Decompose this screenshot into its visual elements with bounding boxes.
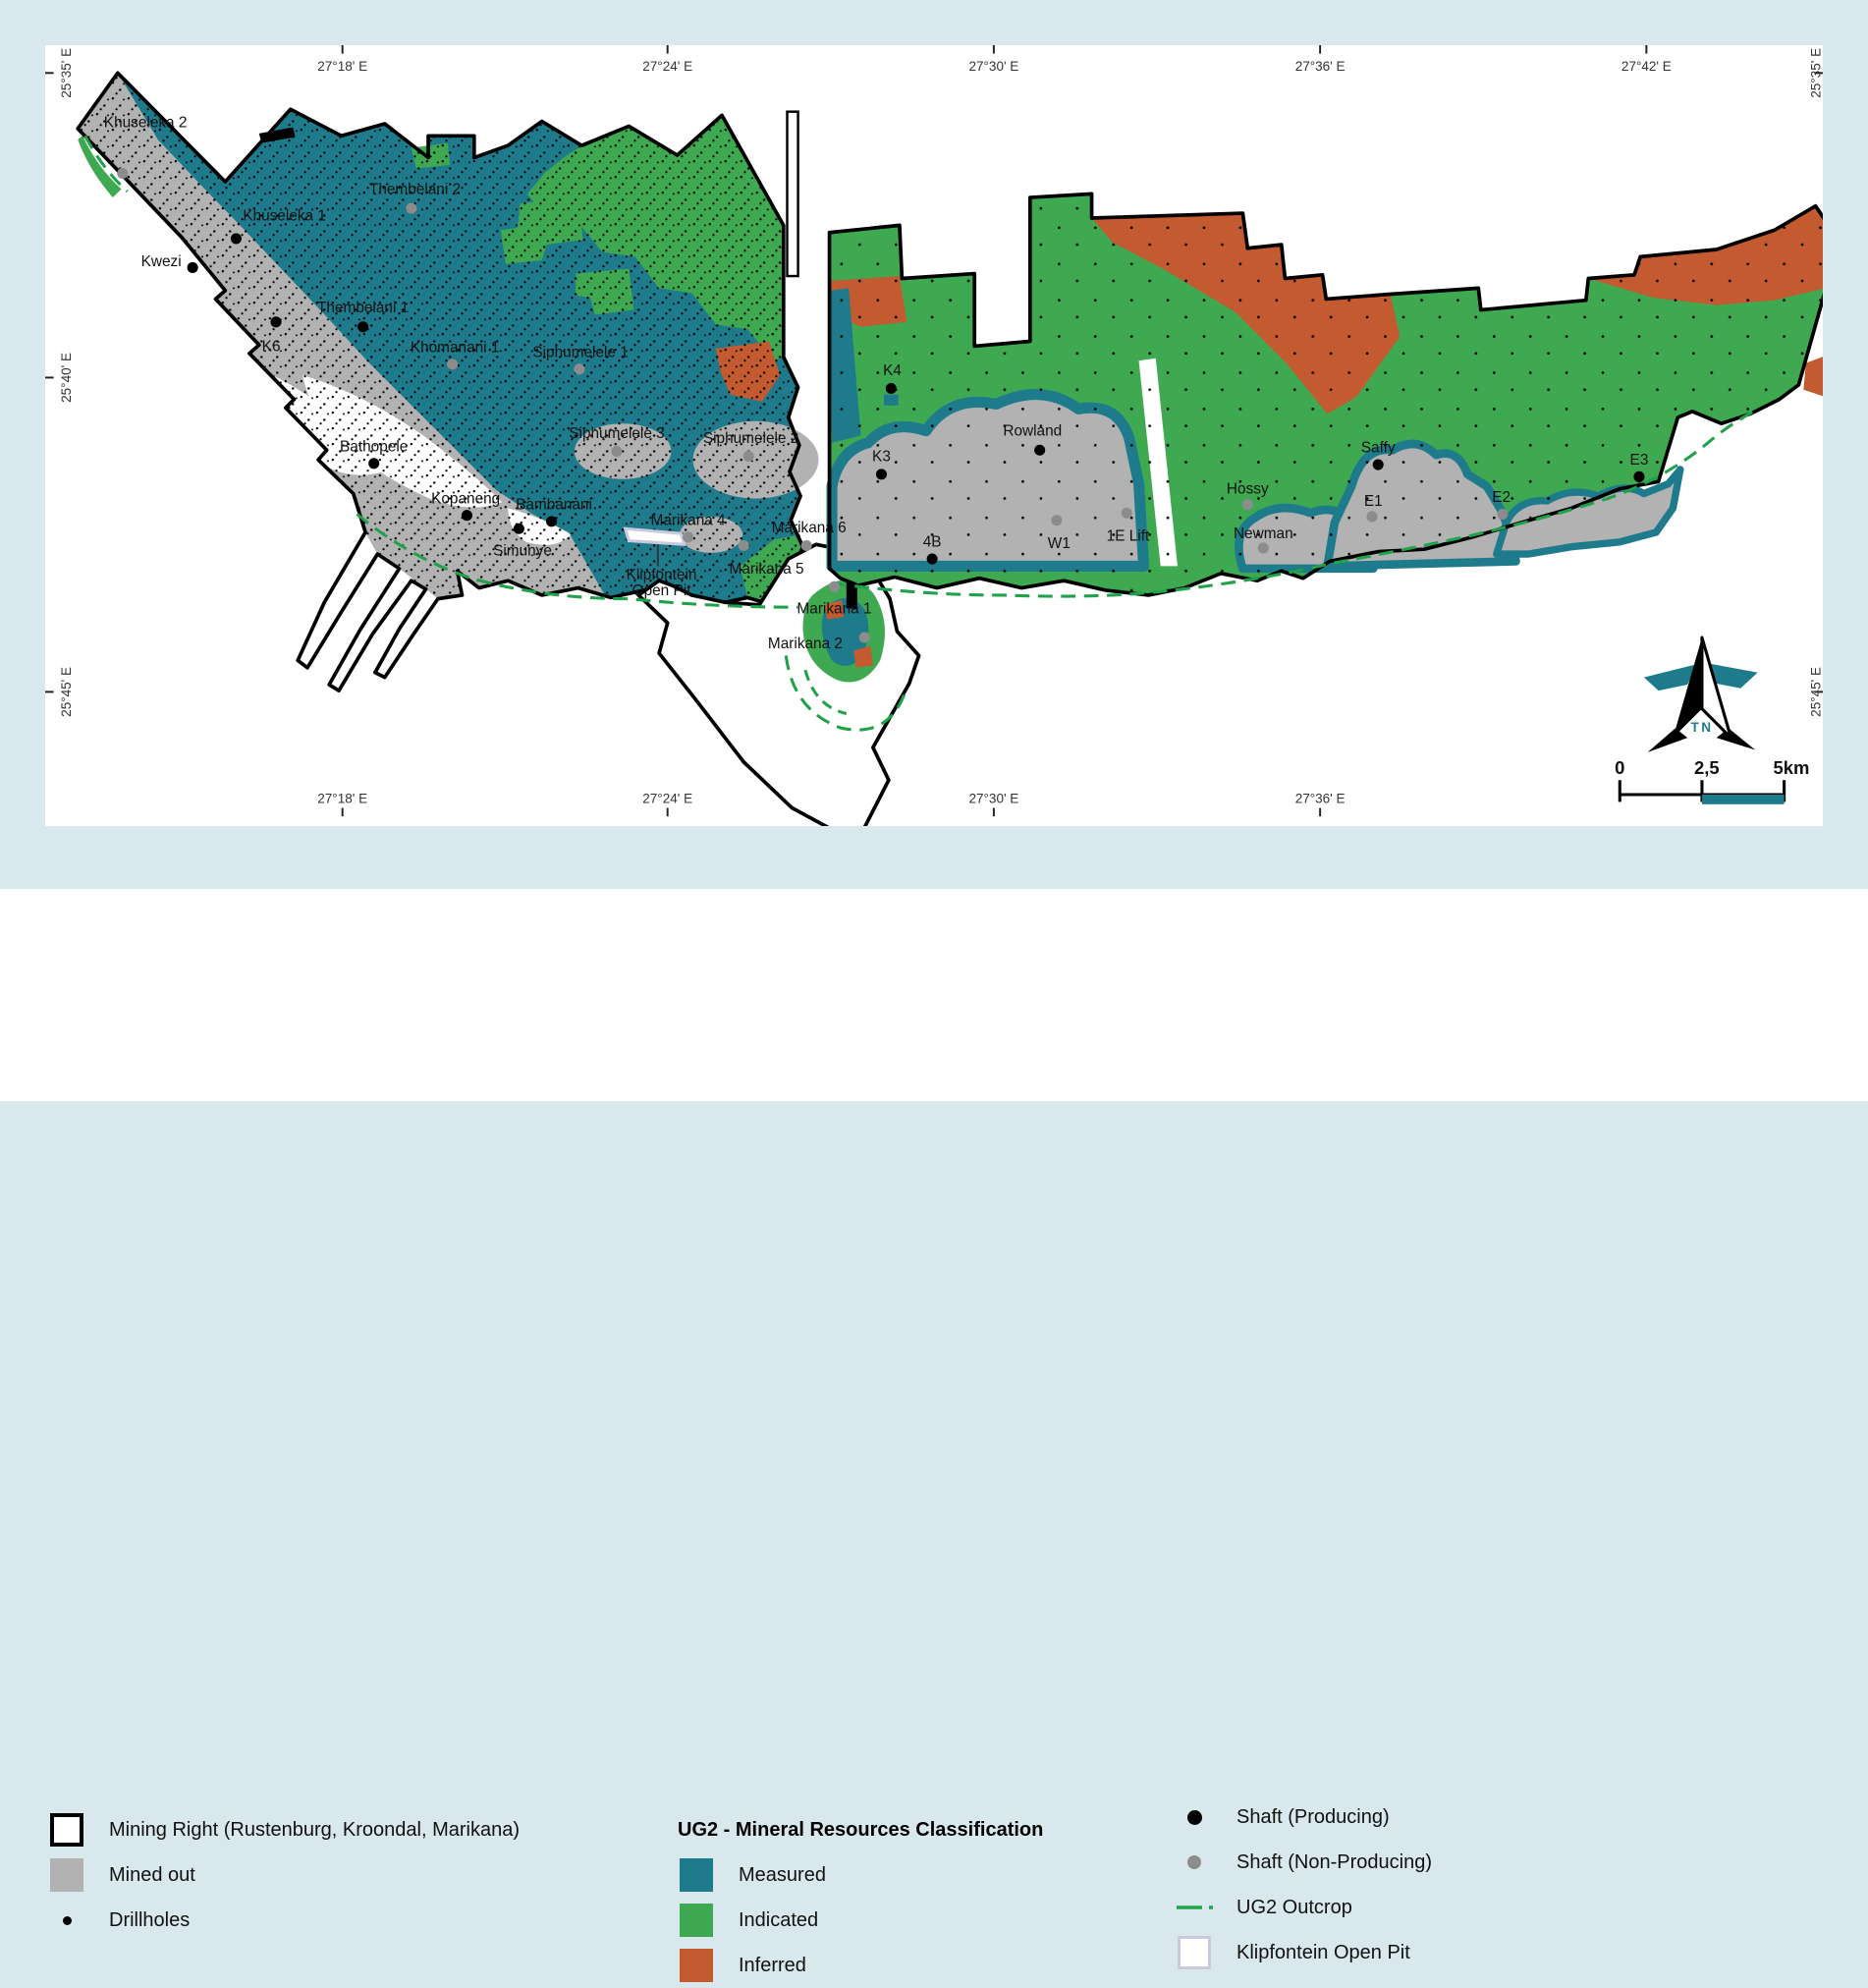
- shaft-dot-thembelani-1: [357, 321, 368, 332]
- shaft-label-bathopele: Bathopele: [340, 438, 408, 455]
- shaft-dot-kopaneng: [462, 510, 472, 521]
- north-arrow: [1644, 637, 1758, 752]
- shaft-dot-hossy: [1242, 499, 1253, 510]
- shaft-dot-siphumelele-1: [574, 363, 584, 374]
- legend-item-shaft-non-producing: Shaft (Non-Producing): [1176, 1840, 1432, 1885]
- coordinate-label: 27°18' E: [317, 792, 367, 806]
- shaft-label-marikana-5: Marikana 5: [730, 561, 804, 578]
- inferred-swatch: [680, 1949, 713, 1982]
- shaft-dot-khomanani-1: [447, 359, 458, 369]
- coordinate-label: 27°36' E: [1295, 59, 1346, 74]
- shaft-dot-1e-lift: [1122, 508, 1132, 519]
- shaft-dot-newman: [1258, 542, 1269, 553]
- shaft-label-saffy: Saffy: [1361, 440, 1396, 457]
- shaft-label-e3: E3: [1630, 452, 1649, 469]
- shaft-dot-khuseleka-1: [231, 233, 242, 244]
- shaft-dot-4b: [927, 553, 938, 564]
- shaft-producing-dot-icon: [1187, 1810, 1202, 1825]
- shaft-label-thembelani-1: Thembelani 1: [317, 300, 409, 316]
- legend-column-1: Mining Right (Rustenburg, Kroondal, Mari…: [48, 1807, 520, 1943]
- shaft-dot-siphumelele-2: [743, 451, 754, 462]
- legend-label: Klipfontein Open Pit: [1236, 1942, 1410, 1964]
- scale-bar: [1620, 780, 1784, 804]
- coordinate-label: 25°45' E: [59, 667, 74, 717]
- shaft-label-bambanani: Bambanani: [516, 497, 592, 514]
- klipfontein-swatch: [1178, 1936, 1211, 1969]
- legend-item-mining-right: Mining Right (Rustenburg, Kroondal, Mari…: [48, 1807, 520, 1852]
- shaft-dot-e3: [1633, 471, 1644, 482]
- shaft-dot-k3: [876, 469, 887, 479]
- shaft-dot-saffy: [1373, 459, 1384, 469]
- shaft-dot-bathopele: [368, 458, 379, 469]
- boundary-notch: [787, 112, 797, 276]
- shaft-label-rowland: Rowland: [1003, 422, 1062, 439]
- page: { "colors": { "background": "#d9e8ec", "…: [0, 0, 1868, 1101]
- legend-label: Shaft (Non-Producing): [1236, 1851, 1432, 1874]
- legend-column-2: UG2 - Mineral Resources Classification M…: [678, 1807, 1043, 1988]
- shaft-label-w1: W1: [1048, 535, 1071, 552]
- legend-label: Shaft (Producing): [1236, 1806, 1390, 1829]
- mine-map: 27°18' E27°24' E27°30' E27°36' E27°42' E…: [45, 45, 1823, 826]
- shaft-dot-thembelani-2: [406, 203, 416, 214]
- shaft-dot-bambanani: [546, 516, 557, 526]
- shaft-label-siphumelele-3: Siphumelele 3: [569, 425, 664, 442]
- shaft-dot-w1: [1051, 515, 1062, 525]
- shaft-dot-e1: [1367, 511, 1378, 522]
- shaft-label-k3: K3: [872, 448, 891, 465]
- area-label: Open Pit: [632, 582, 692, 599]
- scale-bar-label: 5km: [1774, 757, 1810, 778]
- shaft-dot-simunye: [514, 524, 524, 534]
- shaft-label-marikana-2: Marikana 2: [768, 635, 843, 652]
- coordinate-label: 27°30' E: [968, 59, 1018, 74]
- scale-bar-label: 2,5: [1694, 757, 1720, 778]
- legend-label: Drillholes: [109, 1909, 190, 1932]
- shaft-dot-k6: [270, 316, 281, 327]
- legend-label: Mining Right (Rustenburg, Kroondal, Mari…: [109, 1819, 520, 1842]
- shaft-label-thembelani-2: Thembelani 2: [369, 181, 461, 197]
- legend-item-klipfontein: Klipfontein Open Pit: [1176, 1930, 1432, 1975]
- shaft-label-4b: 4B: [923, 534, 942, 551]
- legend-label: Measured: [739, 1864, 826, 1887]
- scale-bar-label: 0: [1615, 757, 1624, 778]
- legend: Mining Right (Rustenburg, Kroondal, Mari…: [0, 889, 1868, 1101]
- shaft-label-khomanani-1: Khomanani 1: [411, 340, 500, 357]
- shaft-label-marikana-6: Marikana 6: [772, 520, 847, 536]
- coordinate-label: 25°40' E: [59, 353, 74, 403]
- legend-item-inferred: Inferred: [678, 1943, 1043, 1988]
- coordinate-label: 25°35' E: [59, 48, 74, 98]
- coordinate-label: 27°42' E: [1621, 59, 1672, 74]
- legend-label: UG2 Outcrop: [1236, 1897, 1352, 1919]
- shaft-dot-marikana-1: [829, 581, 840, 592]
- shaft-label-e1: E1: [1364, 493, 1383, 510]
- legend-item-drillholes: Drillholes: [48, 1898, 520, 1943]
- shaft-non-producing-dot-icon: [1187, 1855, 1201, 1869]
- coordinate-label: 25°35' E: [1809, 48, 1823, 98]
- shaft-dot-k4: [886, 383, 897, 394]
- coordinate-label: 27°24' E: [642, 59, 692, 74]
- legend-label: Indicated: [739, 1909, 818, 1932]
- east-lease-area: [830, 193, 1823, 595]
- measured-swatch: [680, 1858, 713, 1892]
- coordinate-label: 27°30' E: [968, 792, 1018, 806]
- shaft-label-simunye: Simunye: [493, 542, 552, 559]
- coordinate-label: 27°18' E: [317, 59, 367, 74]
- shaft-dot-e2: [1497, 509, 1508, 520]
- shaft-label-k4: K4: [883, 362, 902, 379]
- legend-item-indicated: Indicated: [678, 1898, 1043, 1943]
- shaft-label-hossy: Hossy: [1227, 481, 1269, 498]
- true-north-label: TN: [1690, 720, 1713, 735]
- shaft-dot-marikana-5: [739, 540, 749, 551]
- shaft-label-kopaneng: Kopaneng: [431, 490, 500, 507]
- legend-item-measured: Measured: [678, 1852, 1043, 1898]
- shaft-label-marikana-4: Marikana 4: [651, 513, 726, 529]
- indicated-swatch: [680, 1904, 713, 1937]
- shaft-label-1e-lift: 1E Lift: [1107, 528, 1150, 545]
- mining-right-swatch: [50, 1813, 83, 1847]
- shaft-label-marikana-1: Marikana 1: [797, 600, 871, 617]
- shaft-dot-khuseleka-2: [117, 168, 128, 179]
- shaft-label-e2: E2: [1492, 489, 1511, 506]
- shaft-label-khuseleka-2: Khuseleka 2: [104, 115, 188, 132]
- shaft-label-kwezi: Kwezi: [141, 253, 182, 270]
- legend-header: UG2 - Mineral Resources Classification: [678, 1807, 1043, 1852]
- legend-item-ug2-outcrop: UG2 Outcrop: [1176, 1885, 1432, 1930]
- shaft-dot-marikana-4: [683, 531, 693, 542]
- legend-label: Inferred: [739, 1955, 806, 1977]
- shaft-label-siphumelele-2: Siphumelele 2: [703, 430, 798, 447]
- legend-label: Mined out: [109, 1864, 195, 1887]
- shaft-label-k6: K6: [262, 338, 281, 355]
- map-band: 27°18' E27°24' E27°30' E27°36' E27°42' E…: [0, 0, 1868, 889]
- shaft-dot-siphumelele-3: [611, 446, 622, 457]
- mined-out-swatch: [50, 1858, 83, 1892]
- shaft-dot-marikana-2: [859, 632, 870, 642]
- legend-item-mined-out: Mined out: [48, 1852, 520, 1898]
- shaft-label-newman: Newman: [1234, 525, 1293, 542]
- shaft-dot-rowland: [1034, 445, 1045, 456]
- coordinate-label: 25°45' E: [1809, 667, 1823, 717]
- legend-item-shaft-producing: Shaft (Producing): [1176, 1795, 1432, 1840]
- drillhole-dot-icon: [63, 1916, 72, 1925]
- shaft-dot-marikana-6: [801, 540, 812, 551]
- legend-column-3: Shaft (Producing) Shaft (Non-Producing) …: [1176, 1795, 1432, 1975]
- coordinate-label: 27°24' E: [642, 792, 692, 806]
- shaft-label-khuseleka-1: Khuseleka 1: [243, 207, 326, 224]
- shaft-dot-kwezi: [188, 262, 198, 273]
- ug2-outcrop-dash-icon: [1176, 1902, 1213, 1913]
- shaft-label-siphumelele-1: Siphumelele 1: [532, 345, 628, 361]
- coordinate-label: 27°36' E: [1295, 792, 1346, 806]
- area-label: Klipfontein: [627, 567, 697, 583]
